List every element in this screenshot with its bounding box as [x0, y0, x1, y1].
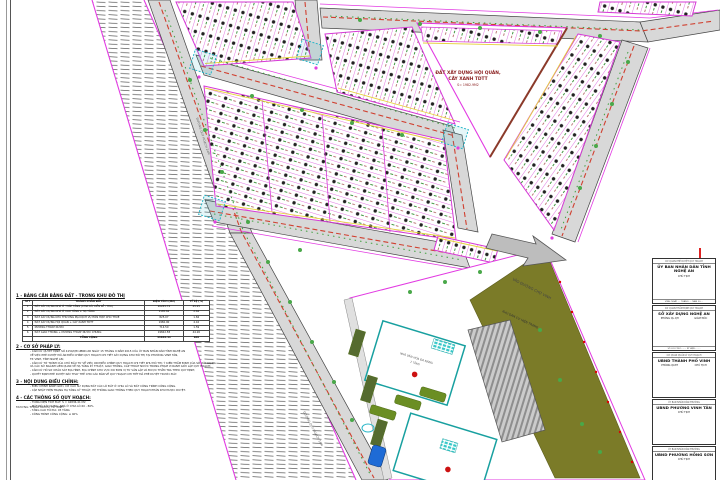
triangle-label-line2: CÂY XANH TDTT	[448, 75, 487, 82]
plan-sheet: NHÀ VĂN HÓA ĐA NĂNG 2 TẦNG	[0, 0, 720, 480]
sheet-frame-inner	[10, 0, 11, 480]
sheet-frame-outer	[6, 0, 7, 480]
section1-title: 1 - BẢNG CÂN BẰNG ĐẤT - TRONG KHU ĐÔ THỊ	[16, 293, 224, 298]
title-block-city: CƠ QUAN QUẢN LÝ QUY HOẠCH UBND THÀNH PHỐ…	[652, 352, 716, 398]
title-block-ward-hongson: ỦY BAN NHÂN DÂN PHƯỜNG UBND PHƯỜNG HỒNG …	[652, 446, 716, 480]
notes-panel: 1 - BẢNG CÂN BẰNG ĐẤT - TRONG KHU ĐÔ THỊ…	[16, 291, 224, 416]
section4-body: - TỔNG DIỆN TÍCH ĐẤT: S = 44836.41 M2 - …	[30, 401, 224, 416]
section3-title: 3 - NỘI DUNG ĐIỀU CHỈNH:	[16, 379, 224, 384]
title-block-ward-vinhtan: ỦY BAN NHÂN DÂN PHƯỜNG UBND PHƯỜNG VINH …	[652, 399, 716, 445]
title-block-department: CƠ QUAN THẨM ĐỊNH QUY HOẠCH SỞ XÂY DỰNG …	[652, 305, 716, 351]
land-balance-table: STT THÀNH PHẦN ĐẤT DIỆN TÍCH (M2) TỶ LỆ …	[22, 300, 210, 342]
lot-block-topright	[598, 2, 696, 16]
section2-title: 2 - CƠ SỞ PHÁP LÝ:	[16, 344, 224, 349]
section3-body: - ĐIỀU CHỈNH RANH GIỚI, CƠ CẤU SỬ DỤNG Đ…	[30, 385, 224, 393]
section2-body: - CĂN CỨ QUYẾT ĐỊNH SỐ 4150/QĐ.UBND-XD N…	[30, 350, 224, 376]
plot-mark	[699, 248, 701, 258]
title-block-province: CƠ QUAN PHÊ DUYỆT QUY HOẠCH ỦY BAN NHÂN …	[652, 258, 716, 304]
table-total-row: TỔNG CỘNG 44836.41100	[23, 336, 210, 341]
facility-site: NHÀ VĂN HÓA ĐA NĂNG 2 TẦNG	[344, 248, 645, 480]
triangle-label-area: S= 1982.9M2	[457, 83, 479, 87]
